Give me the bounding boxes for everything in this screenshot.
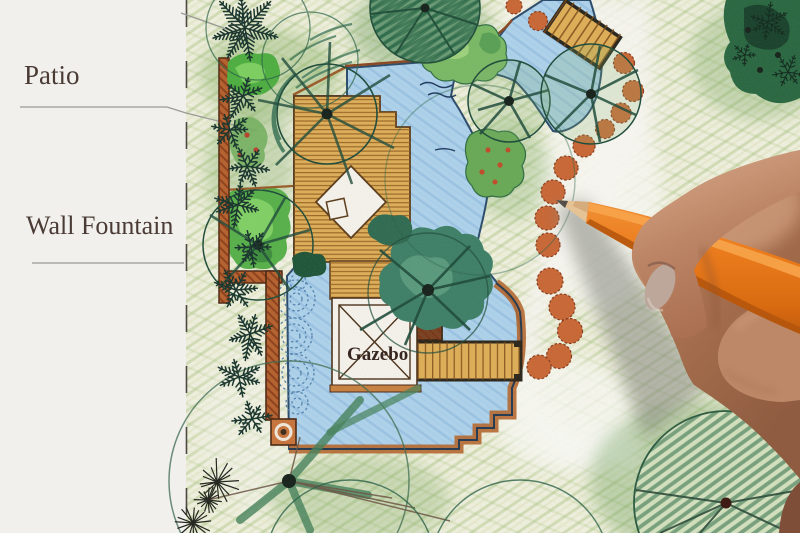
svg-text:Wall Fountain: Wall Fountain [26,211,173,240]
svg-text:Patio: Patio [24,60,80,90]
